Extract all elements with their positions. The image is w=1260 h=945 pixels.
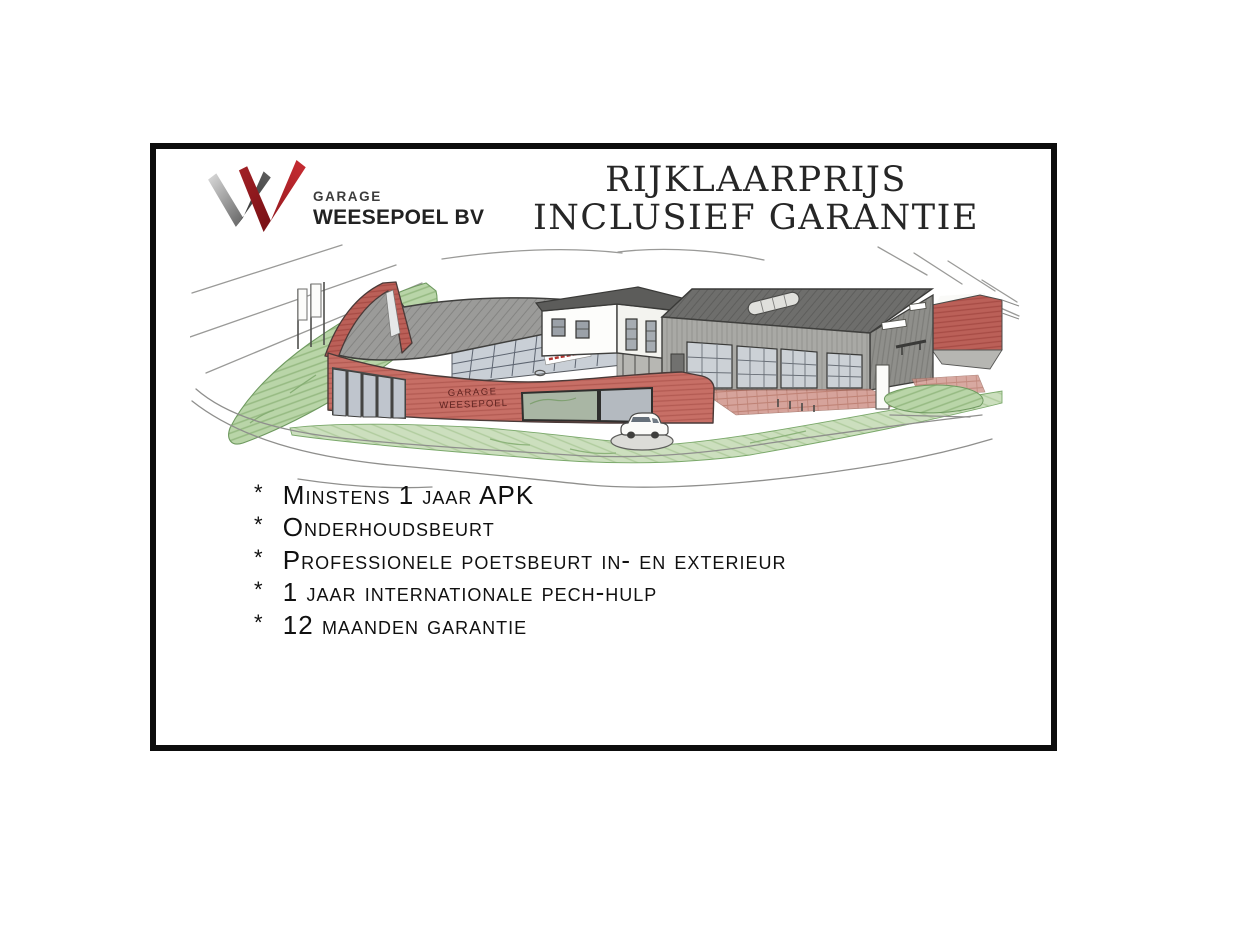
w-checkmarks-icon bbox=[205, 158, 315, 236]
feature-item: * Minstens 1 jaar APK bbox=[254, 480, 786, 512]
feature-text: Professionele poetsbeurt in- en exterieu… bbox=[283, 545, 787, 575]
bushes-right bbox=[884, 385, 983, 413]
weesepoel-logo-icon bbox=[205, 158, 315, 236]
page-title-line2: INCLUSIEF GARANTIE bbox=[506, 199, 1006, 237]
feature-item: * 12 maanden garantie bbox=[254, 610, 786, 642]
feature-text: 1 jaar internationale pech-hulp bbox=[283, 577, 658, 607]
company-name-small: GARAGE bbox=[313, 190, 484, 204]
garage-building-drawing: GARAGE WEESEPOEL bbox=[190, 243, 1020, 501]
building-sign-line1: GARAGE bbox=[448, 386, 498, 399]
poster-card: GARAGE WEESEPOEL BV RIJKLAARPRIJS INCLUS… bbox=[150, 143, 1057, 751]
feature-item: * Professionele poetsbeurt in- en exteri… bbox=[254, 545, 786, 577]
company-name-block: GARAGE WEESEPOEL BV bbox=[313, 190, 484, 228]
bullet-asterisk: * bbox=[254, 478, 264, 508]
feature-list: * Minstens 1 jaar APK * Onderhoudsbeurt … bbox=[254, 480, 786, 642]
building-sketch: GARAGE WEESEPOEL bbox=[190, 243, 1020, 501]
far-right-red-building bbox=[932, 293, 1019, 369]
feature-text: 12 maanden garantie bbox=[283, 610, 527, 640]
feature-text: Minstens 1 jaar APK bbox=[283, 480, 534, 510]
page-title-line1: RIJKLAARPRIJS bbox=[506, 161, 1006, 199]
bullet-asterisk: * bbox=[254, 575, 264, 605]
company-name-large: WEESEPOEL BV bbox=[313, 207, 484, 228]
feature-text: Onderhoudsbeurt bbox=[283, 512, 495, 542]
bullet-asterisk: * bbox=[254, 510, 264, 540]
feature-item: * 1 jaar internationale pech-hulp bbox=[254, 577, 786, 609]
feature-item: * Onderhoudsbeurt bbox=[254, 512, 786, 544]
bullet-asterisk: * bbox=[254, 543, 264, 573]
page-title: RIJKLAARPRIJS INCLUSIEF GARANTIE bbox=[506, 161, 1006, 237]
bullet-asterisk: * bbox=[254, 608, 264, 638]
brick-apron bbox=[700, 389, 906, 415]
